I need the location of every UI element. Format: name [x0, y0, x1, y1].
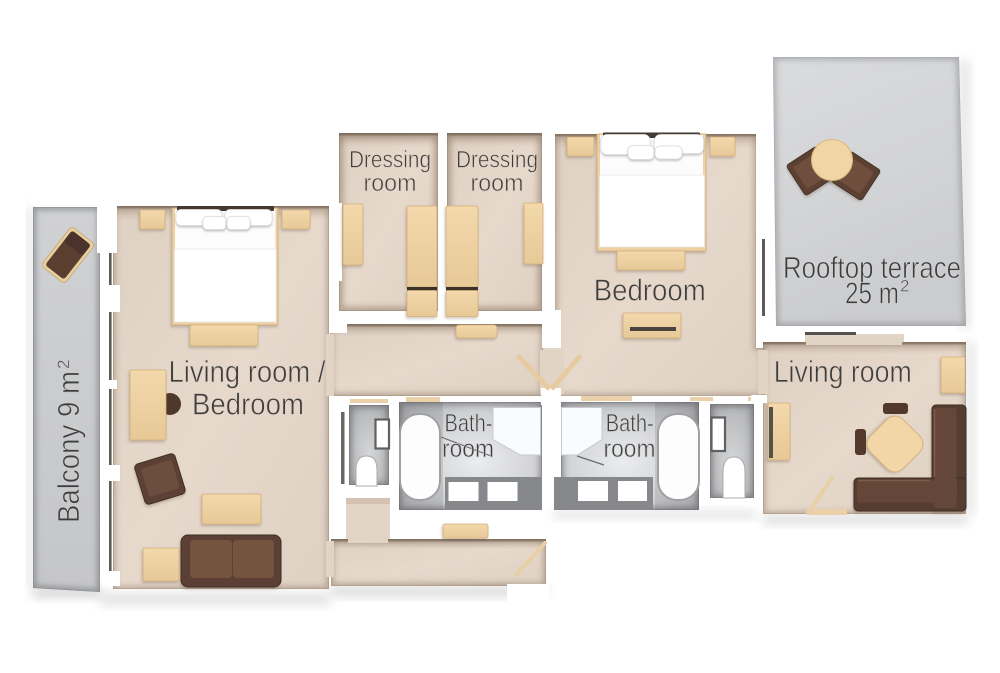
svg-text:room: room	[442, 435, 494, 463]
svg-text:25 m: 25 m	[845, 276, 899, 311]
svg-text:2: 2	[54, 360, 73, 369]
svg-text:Bath-: Bath-	[606, 409, 654, 437]
svg-text:Bath-: Bath-	[445, 409, 493, 437]
svg-text:Living room: Living room	[774, 354, 912, 389]
svg-text:room: room	[471, 171, 524, 197]
svg-text:room: room	[364, 171, 417, 197]
svg-text:Dressing: Dressing	[349, 148, 431, 174]
svg-text:Dressing: Dressing	[456, 148, 538, 174]
svg-text:Balcony 9 m: Balcony 9 m	[51, 371, 86, 523]
svg-text:Bedroom: Bedroom	[192, 387, 304, 422]
svg-text:Living room /: Living room /	[169, 354, 326, 389]
svg-text:2: 2	[900, 277, 909, 296]
svg-text:Bedroom: Bedroom	[594, 273, 706, 307]
svg-text:room: room	[604, 435, 656, 463]
